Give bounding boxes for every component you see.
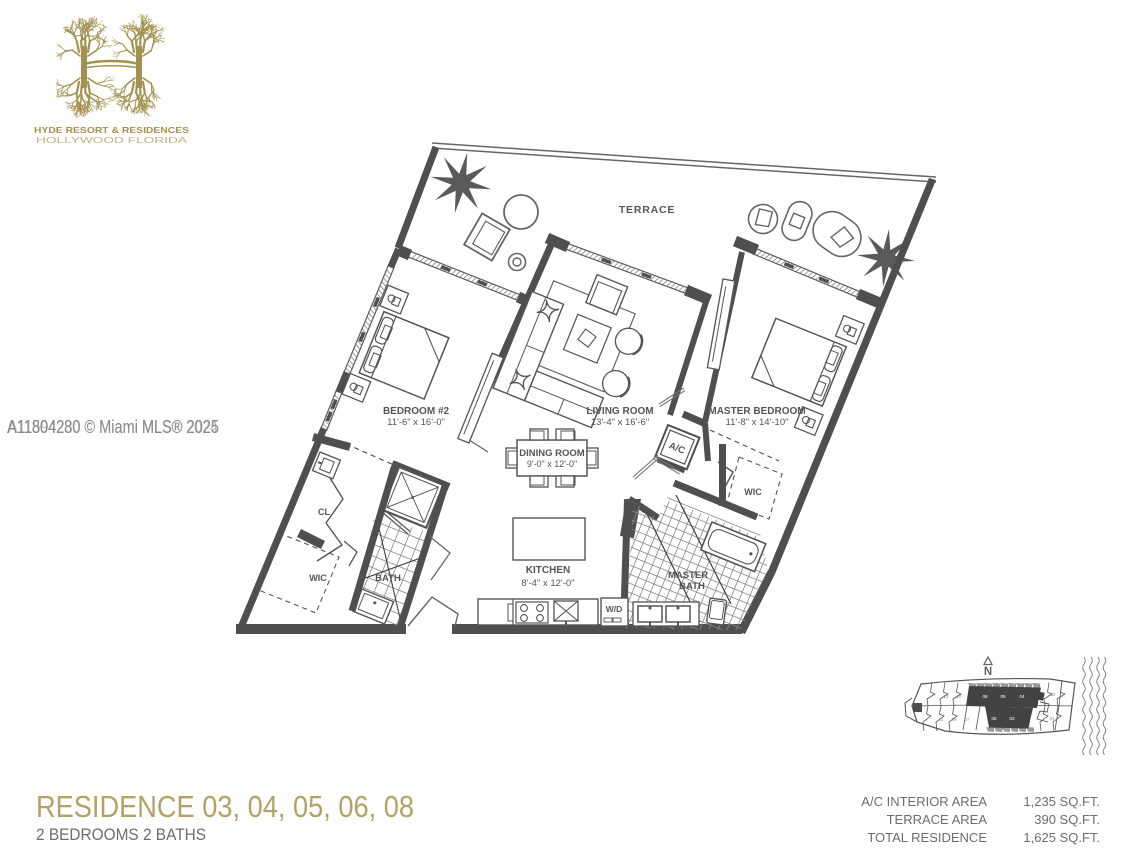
svg-text:MASTER BEDROOM: MASTER BEDROOM [708, 406, 805, 417]
svg-text:10: 10 [956, 694, 962, 699]
svg-text:06: 06 [991, 716, 997, 721]
svg-text:WIC: WIC [744, 487, 762, 497]
svg-text:11'-6" x 16'-0": 11'-6" x 16'-0" [387, 417, 445, 428]
svg-text:09: 09 [951, 717, 957, 722]
svg-text:HOLLYWOOD FLORIDA: HOLLYWOOD FLORIDA [36, 135, 188, 145]
svg-text:12: 12 [943, 694, 949, 699]
svg-text:11'-8" x 14'-10": 11'-8" x 14'-10" [725, 417, 788, 428]
svg-text:1,235 SQ.FT.: 1,235 SQ.FT. [1023, 794, 1100, 809]
svg-text:13'-4" x 16'-6": 13'-4" x 16'-6" [591, 417, 649, 428]
svg-text:DINING ROOM: DINING ROOM [519, 448, 585, 459]
svg-text:8'-4" x 12'-0": 8'-4" x 12'-0" [521, 578, 574, 589]
svg-text:KITCHEN: KITCHEN [526, 565, 570, 576]
svg-text:2 BEDROOMS 2 BATHS: 2 BEDROOMS 2 BATHS [36, 826, 206, 844]
svg-text:9'-0" x 12'-0": 9'-0" x 12'-0" [527, 459, 577, 469]
svg-text:WIC: WIC [309, 573, 327, 583]
svg-text:08: 08 [982, 694, 988, 699]
svg-text:01: 01 [1049, 716, 1055, 721]
svg-text:BATH: BATH [375, 573, 401, 584]
svg-text:TERRACE: TERRACE [619, 204, 675, 216]
svg-text:07: 07 [964, 717, 970, 722]
svg-text:1,625 SQ.FT.: 1,625 SQ.FT. [1023, 830, 1100, 845]
svg-text:02: 02 [1050, 692, 1056, 697]
svg-text:N: N [984, 666, 992, 678]
svg-text:A/C INTERIOR AREA: A/C INTERIOR AREA [861, 794, 987, 809]
svg-text:MASTER: MASTER [668, 570, 708, 581]
svg-text:TOTAL RESIDENCE: TOTAL RESIDENCE [867, 830, 987, 845]
svg-text:W/D: W/D [606, 604, 623, 614]
svg-text:TERRACE AREA: TERRACE AREA [887, 812, 988, 827]
svg-text:LIVING ROOM: LIVING ROOM [586, 406, 653, 417]
svg-text:BATH: BATH [679, 581, 705, 592]
svg-text:11: 11 [939, 717, 944, 722]
svg-text:390 SQ.FT.: 390 SQ.FT. [1034, 812, 1100, 827]
svg-text:BEDROOM #2: BEDROOM #2 [383, 406, 450, 417]
svg-text:HYDE RESORT & RESIDENCES: HYDE RESORT & RESIDENCES [34, 125, 189, 135]
svg-text:A11594230 © Miami MLS® 2024: A11594230 © Miami MLS® 2024 [8, 417, 218, 437]
svg-text:05: 05 [1000, 694, 1006, 699]
svg-text:CL: CL [318, 507, 330, 517]
svg-text:04: 04 [1019, 694, 1025, 699]
svg-text:03: 03 [1009, 716, 1015, 721]
svg-text:RESIDENCE 03, 04, 05, 06, 08: RESIDENCE 03, 04, 05, 06, 08 [36, 789, 414, 824]
